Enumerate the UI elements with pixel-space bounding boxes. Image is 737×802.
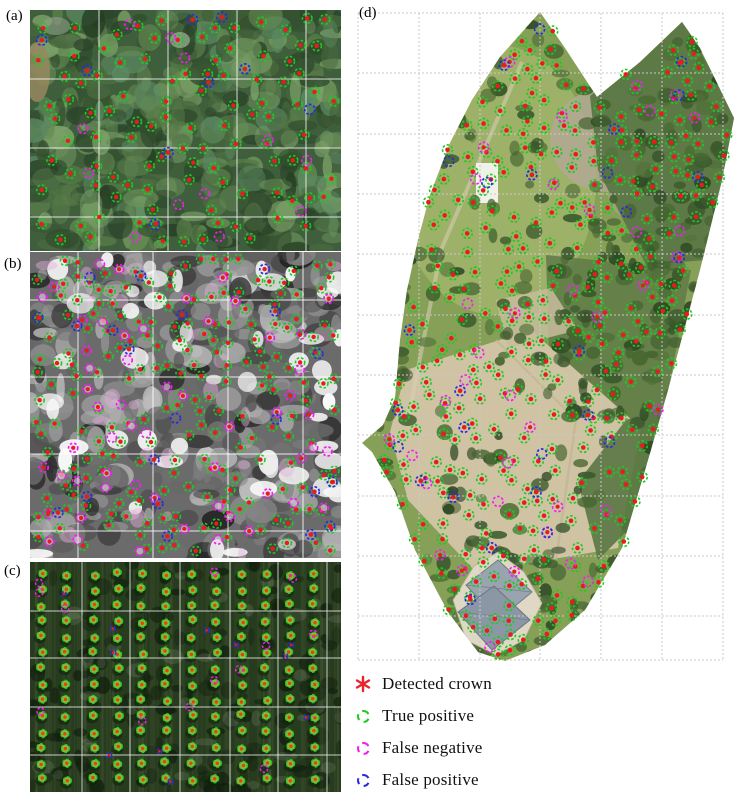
legend-label-detected-crown: Detected crown xyxy=(382,674,492,694)
panel-c-orthophoto xyxy=(30,562,341,792)
legend-item-detected-crown: Detected crown xyxy=(353,668,492,700)
legend-item-false-positive: False positive xyxy=(353,764,492,796)
panel-label-c: (c) xyxy=(4,564,21,579)
legend-label-true-positive: True positive xyxy=(382,706,474,726)
detected-crown-icon xyxy=(353,675,373,693)
true-positive-icon xyxy=(357,710,370,723)
legend-item-true-positive: True positive xyxy=(353,700,492,732)
false-negative-icon xyxy=(357,742,370,755)
false-positive-icon xyxy=(357,774,370,787)
panel-label-a: (a) xyxy=(6,9,23,24)
panel-label-b: (b) xyxy=(4,257,22,272)
panel-label-d: (d) xyxy=(359,6,377,21)
legend-label-false-negative: False negative xyxy=(382,738,483,758)
panel-a-orthophoto xyxy=(30,10,341,251)
legend-label-false-positive: False positive xyxy=(382,770,479,790)
panel-b-orthophoto xyxy=(30,252,341,558)
legend-item-false-negative: False negative xyxy=(353,732,492,764)
panel-d-orthomosaic xyxy=(346,0,737,676)
figure-canvas: (a) (b) (c) (d) Detected crown True posi… xyxy=(0,0,737,802)
legend: Detected crown True positive False negat… xyxy=(353,668,492,796)
